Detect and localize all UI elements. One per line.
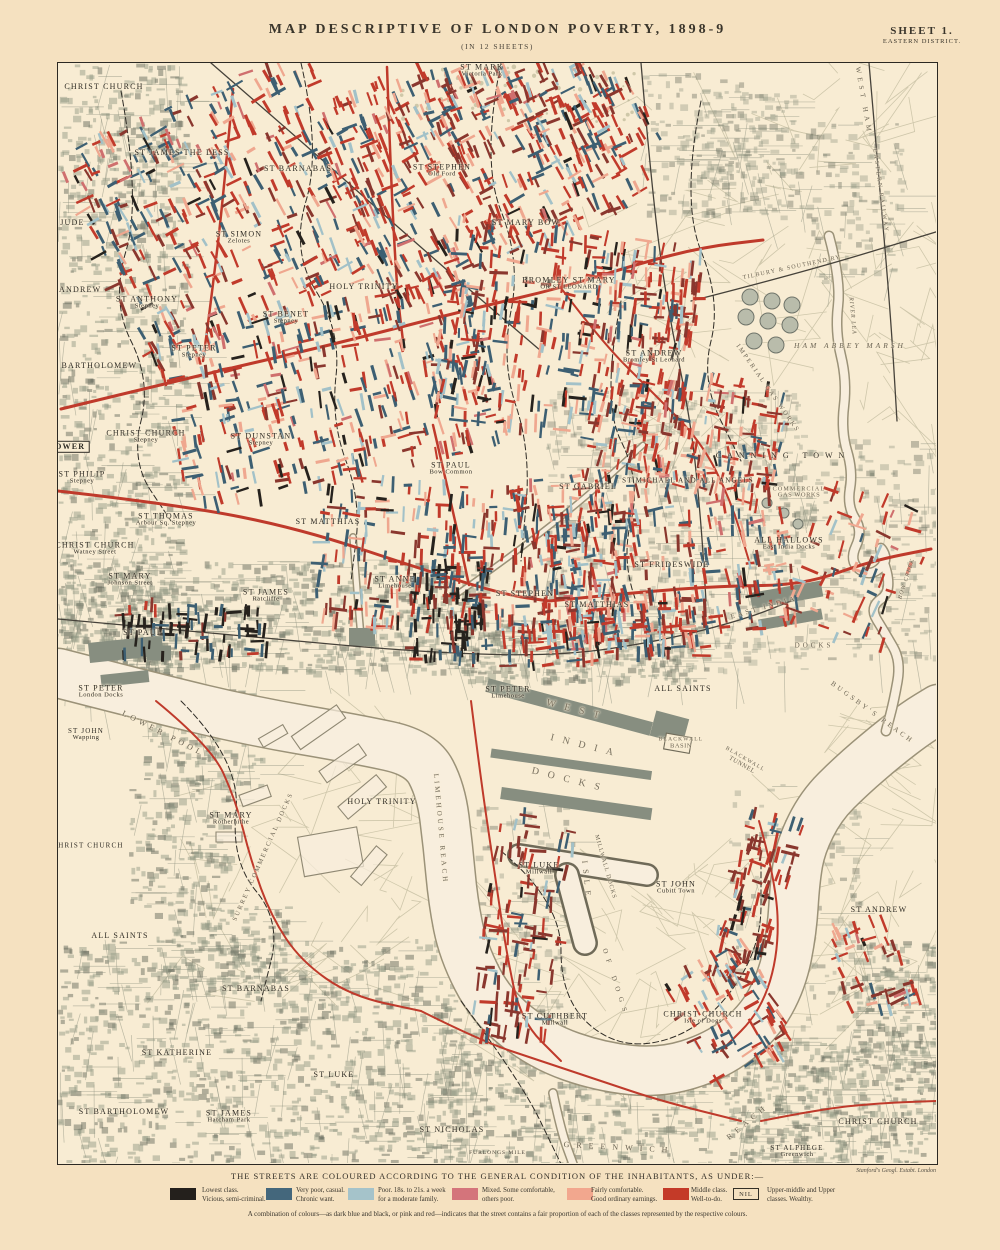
page-subtitle: (IN 12 SHEETS) [57,42,938,51]
legend-swatch [567,1188,593,1200]
map-parish-label: ST FRIDESWIDE [634,561,709,569]
map-parish-label: HOLY TRINITY [347,798,416,806]
map-parish-label: ST SIMONZelotes [216,230,263,245]
map-parish-label: ST PAULBow Common [429,461,472,476]
map-parish-label: ALL SAINTS [654,685,711,693]
map-parish-label: ST THOMASArbour Sq. Stepney [136,512,196,527]
map-parish-label: ALL SAINTS [91,932,148,940]
map-parish-label: ST NICHOLAS [420,1126,485,1134]
map-parish-label: ST BARNABAS [222,985,290,993]
map-feature-label: OF DOGS [600,948,629,1019]
map-parish-label: ST LUKEMillwall [519,861,560,876]
map-feature-label: INDIA [549,733,623,761]
map-sheet-page: MAP DESCRIPTIVE OF LONDON POVERTY, 1898-… [0,0,1000,1250]
map-feature-label: DOCKS [795,642,834,649]
map-parish-label: ST JAMESRatcliffe [243,588,289,603]
legend-item-label: Middle class.Well-to-do. [691,1187,727,1205]
map-parish-label: ST PETERLondon Docks [78,684,123,699]
map-parish-label: ST MATTHIAS [565,601,630,609]
map-parish-label: ST CUTHBERTMillwall [522,1012,588,1027]
sheet-number: SHEET 1. [862,25,982,37]
map-parish-label: CHRIST CHURCHWatney Street [57,541,135,556]
map-parish-label: ST ANDREW [57,286,101,294]
map-feature-label: HAM ABBEY MARSH [794,342,906,350]
map-parish-label: ST GABRIEL [559,483,617,491]
map-parish-label: CHRIST CHURCH [838,1118,917,1126]
map-parish-label: BROMLEY ST MARYOR ST LEONARD [522,276,616,291]
map-feature-label: EASTERN RAILWAY [871,148,889,233]
map-parish-label: ST STEPHENOld Ford [413,163,471,178]
map-parish-label: ALL HALLOWSEast India Docks [754,536,824,551]
legend-item-label: Upper-middle and Upperclasses. Wealthy. [767,1187,835,1205]
legend-item-label: Very poor, casual.Chronic want. [296,1187,345,1205]
legend-item-label: Mixed. Some comfortable,others poor. [482,1187,555,1205]
legend-item-label: Poor. 18s. to 21s. a weekfor a moderate … [378,1187,446,1205]
map-parish-label: ST MARKVictoria Park [460,63,504,78]
map-parish-label: ST ANTHONYStepney [116,295,178,310]
map-feature-label: BLACKWALLBASIN [659,738,704,751]
legend-swatch [266,1188,292,1200]
map-feature-label: COMMERCIALGAS WORKS [773,486,826,499]
map-feature-label: BOW CREEK [897,558,916,600]
map-feature-label: IMPERIAL GAS WORKS [734,344,800,435]
map-feature-label: EAST INDIA [730,595,798,621]
legend-item-label: Lowest class.Vicious, semi-criminal. [202,1187,266,1205]
map-parish-label: ST ANDREW [851,906,908,914]
map-parish-label: CHRIST CHURCH [64,83,143,91]
page-title: MAP DESCRIPTIVE OF LONDON POVERTY, 1898-… [57,22,938,38]
sheet-district: EASTERN DISTRICT. [862,38,982,45]
legend-swatch-nil: NIL [733,1188,759,1200]
map-feature-label: WEST HAM [853,66,872,135]
map-feature-label: TILBURY & SOUTHEND RY [742,255,841,282]
sheet-block: SHEET 1. EASTERN DISTRICT. [862,25,982,45]
map-feature-label: DOCKS [530,766,609,795]
map-labels-layer: CHRIST CHURCHST JAMES THE LESSST BARNABA… [58,63,937,1164]
legend-swatch [170,1188,196,1200]
map-parish-label: ST BARTHOLOMEW [57,362,137,370]
map-frame: CHRIST CHURCHST JAMES THE LESSST BARNABA… [57,62,938,1165]
map-parish-label: ST JOHNWapping [68,728,104,742]
legend-item-label: Fairly comfortable.Good ordinary earning… [591,1187,657,1205]
map-feature-label: REACH [725,1102,770,1142]
map-parish-label: ST JAMESHatcham Park [206,1109,252,1124]
map-parish-label: ST ANDREWBromley St Leonard [623,349,685,364]
map-parish-label: ST PETERLimehouse [485,685,530,700]
map-feature-label: BUGSBY'S REACH [829,680,915,745]
legend-swatch [452,1188,478,1200]
map-parish-label: CHRIST CHURCHIsle of Dogs [663,1010,742,1025]
scale-bar-label: FURLONGS MILE [57,1150,938,1156]
map-parish-label: ST MARYJohnson Street [107,572,152,587]
legend-title: THE STREETS ARE COLOURED ACCORDING TO TH… [57,1171,938,1181]
map-feature-label: BLACKWALLTUNNEL [720,746,765,779]
map-feature-label: LOWER POOL [120,710,205,759]
map-parish-label: ST MICHAEL AND ALL ANGELS [622,477,754,484]
map-feature-label: ISLE [580,860,593,902]
map-parish-label: ST DUNSTANStepney [231,432,292,447]
map-parish-label: ST ANNELimehouse [374,575,415,590]
map-parish-label: HOLY TRINITY [329,283,398,291]
map-parish-label: ST BARTHOLOMEW [79,1108,170,1116]
map-parish-label: ST JUDE [57,219,85,227]
map-parish-label: ST MARY BOW [492,219,560,227]
map-parish-label: ST PHILIPStepney [59,470,106,485]
map-parish-label: ST JAMES THE LESS [134,149,229,157]
map-parish-label: ST BARNABAS [264,165,332,173]
map-parish-label: ST LUKE [314,1071,355,1079]
map-parish-label: ST BENETStepney [263,310,310,325]
map-parish-label: CANNING TOWN [716,452,851,460]
map-feature-label: RIVER LEA [847,297,857,335]
map-parish-label: ST STEPHEN [496,590,554,598]
map-parish-label: CHRIST CHURCHStepney [106,429,185,444]
legend-swatch [348,1188,374,1200]
map-parish-label: ST MATTHIAS [296,518,361,526]
map-parish-label: ST PAUL [123,629,163,637]
map-parish-label: ST KATHERINE [142,1049,212,1057]
map-parish-label: ST MARYRotherhithe [209,811,252,826]
map-feature-label: MILLWALL DOCKS [593,834,617,900]
map-parish-label: ST PETERStepney [171,344,216,359]
map-parish-label: TOWER [57,441,89,453]
map-feature-label: WEST [545,698,609,723]
map-parish-label: CHRIST CHURCH [57,842,124,849]
publisher-credit: Stanford's Geogl. Estabt. London [856,1168,936,1174]
legend-swatch [663,1188,689,1200]
map-feature-label: LIMEHOUSE REACH [432,773,449,884]
map-parish-label: ST JOHNCubitt Town [656,880,696,895]
legend-note: A combination of colours—as dark blue an… [57,1210,938,1218]
